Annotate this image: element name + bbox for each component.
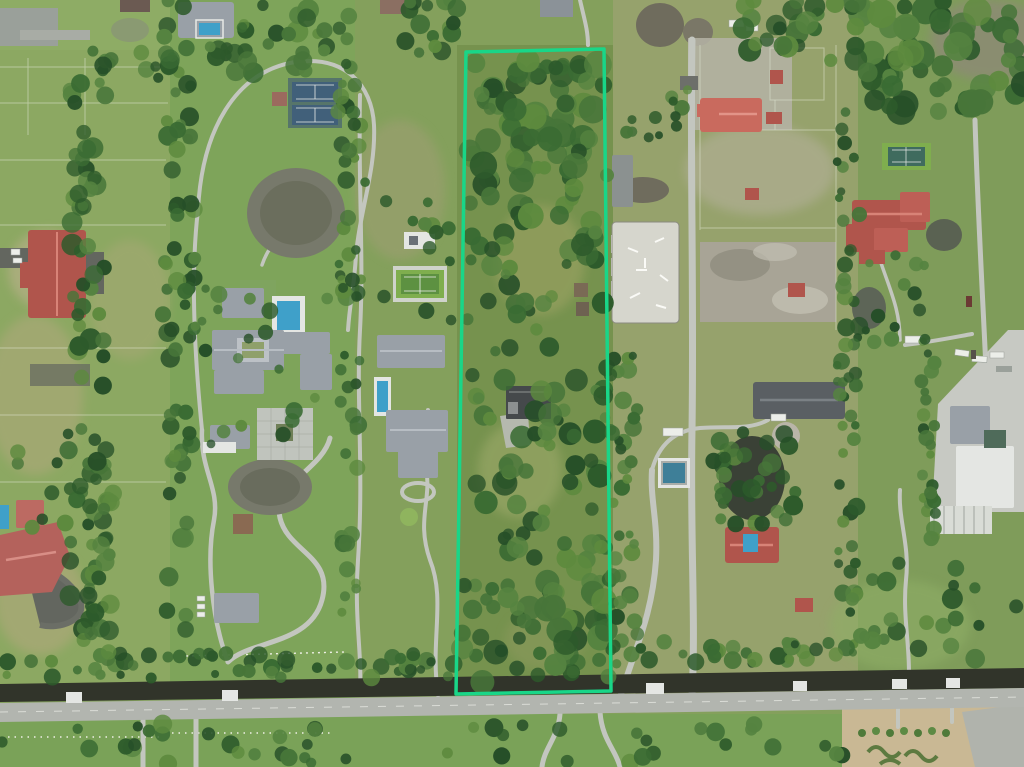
tree-canopy [708, 650, 722, 664]
tree-canopy [180, 299, 191, 310]
tree-canopy [485, 582, 499, 596]
pool-screen-cage [661, 461, 687, 485]
tree-canopy [473, 392, 485, 404]
tree-canopy [182, 426, 196, 440]
equestrian-driveway [691, 40, 693, 695]
tree-canopy [498, 587, 519, 608]
tree-canopy [948, 580, 959, 591]
tree-canopy [443, 671, 453, 681]
tree-canopy [85, 265, 104, 284]
tree-canopy [474, 87, 490, 103]
tree-canopy [552, 722, 567, 737]
tree-canopy [277, 651, 295, 669]
tree-canopy [86, 603, 104, 621]
tree-canopy [908, 286, 922, 300]
tree-canopy [308, 722, 323, 737]
tree-canopy [340, 351, 349, 360]
tree-canopy [628, 412, 641, 425]
tree-canopy [338, 80, 347, 89]
tree-canopy [406, 647, 420, 661]
tree-canopy [628, 115, 637, 124]
house-south-wing [398, 450, 438, 478]
palm [900, 727, 908, 735]
tree-canopy [410, 14, 430, 34]
tree-canopy [95, 670, 105, 680]
tree-canopy [405, 664, 416, 675]
tree-canopy [159, 603, 175, 619]
tree-canopy [694, 722, 707, 735]
tree-canopy [341, 754, 352, 765]
red-shed [745, 188, 759, 200]
parcel-shed [576, 302, 589, 316]
tree-canopy [257, 0, 268, 11]
tree-canopy [823, 637, 835, 649]
tree-canopy [233, 664, 246, 677]
tree-canopy [445, 655, 463, 673]
tree-canopy [160, 257, 173, 270]
tree-canopy [348, 118, 361, 131]
mansion-north-wing [222, 288, 264, 318]
palm [886, 729, 894, 737]
mansion-gable [900, 192, 930, 222]
dirt-lot [636, 3, 684, 47]
tree-canopy [493, 747, 510, 764]
tree-canopy [207, 440, 216, 449]
tree-canopy [178, 40, 194, 56]
clubhouse-garage [214, 593, 259, 623]
tree-canopy [340, 591, 350, 601]
tree-canopy [509, 168, 534, 193]
tree-canopy [177, 283, 193, 299]
tree-canopy [169, 122, 186, 139]
tree-canopy [917, 470, 928, 481]
tree-canopy [833, 157, 842, 166]
palm [858, 729, 866, 737]
aerial-photo [0, 0, 1024, 767]
tree-canopy [562, 474, 578, 490]
tree-canopy [63, 429, 74, 440]
tree-canopy [629, 539, 639, 549]
tree-canopy [72, 478, 89, 495]
tree-canopy [418, 303, 434, 319]
tree-canopy [244, 293, 256, 305]
tree-canopy [1009, 599, 1023, 613]
tree-canopy [79, 238, 96, 255]
tree-canopy [335, 260, 344, 269]
gazebo [233, 514, 253, 534]
tree-canopy [846, 540, 858, 552]
tree-canopy [173, 650, 187, 664]
tree-canopy [150, 61, 160, 71]
tree-canopy [429, 225, 444, 240]
tree-canopy [88, 452, 107, 471]
tree-canopy [349, 460, 365, 476]
tree-canopy [465, 368, 479, 382]
tree-canopy [567, 429, 582, 444]
tree-canopy [760, 33, 774, 47]
tree-canopy [846, 607, 856, 617]
tree-canopy [377, 290, 390, 303]
tree-canopy [70, 185, 88, 203]
tree-canopy [565, 369, 588, 392]
tree-canopy [783, 495, 803, 515]
tree-canopy [422, 0, 434, 11]
tree-canopy [583, 420, 607, 444]
tree-canopy [134, 45, 150, 61]
tree-canopy [205, 41, 216, 52]
parked-car [966, 296, 972, 307]
tree-canopy [178, 75, 197, 94]
tree-canopy [930, 9, 953, 32]
tree-canopy [466, 53, 486, 73]
tree-canopy [94, 377, 112, 395]
tree-canopy [60, 585, 81, 606]
tree-canopy [179, 608, 194, 623]
tree-canopy [3, 671, 11, 679]
mansion-east-wing [282, 332, 330, 354]
tree-canopy [92, 307, 106, 321]
tree-canopy [79, 587, 97, 605]
tree-canopy [893, 14, 920, 41]
tree-canopy [926, 450, 934, 458]
tree-canopy [877, 572, 897, 592]
tree-canopy [540, 337, 560, 357]
tree-canopy [199, 344, 212, 357]
tree-canopy [445, 256, 455, 266]
pond-center [240, 468, 300, 506]
tree-canopy [526, 549, 542, 565]
tree-canopy [687, 653, 704, 670]
tree-canopy [604, 368, 617, 381]
tree-canopy [146, 673, 157, 684]
palm [942, 729, 950, 737]
tree-canopy [396, 32, 414, 50]
tree-canopy [669, 97, 678, 106]
tree-canopy [201, 285, 209, 293]
tree-canopy [733, 17, 755, 39]
tree-canopy [727, 516, 744, 533]
tree-canopy [550, 206, 569, 225]
tree-canopy [584, 454, 598, 468]
tree-canopy [179, 516, 194, 531]
tree-canopy [69, 336, 89, 356]
tree-canopy [237, 22, 248, 33]
tree-canopy [846, 37, 864, 55]
tree-canopy [426, 657, 435, 666]
parked-car [971, 350, 976, 359]
tree-canopy [579, 96, 607, 124]
tree-canopy [338, 653, 355, 670]
tree-canopy [486, 600, 500, 614]
tree-canopy [87, 46, 98, 57]
tree-canopy [601, 669, 617, 685]
tree-canopy [333, 22, 346, 35]
partial-roof [120, 0, 150, 12]
culvert-bridge [892, 679, 907, 689]
tree-canopy [592, 292, 614, 314]
palm [928, 727, 936, 735]
tree-canopy [920, 388, 929, 397]
tree-canopy [418, 217, 432, 231]
tree-canopy [754, 516, 770, 532]
tree-canopy [442, 748, 453, 759]
tree-canopy [930, 508, 941, 519]
tree-canopy [505, 148, 524, 167]
tree-canopy [163, 652, 174, 663]
tree-canopy [164, 161, 181, 178]
tree-canopy [507, 495, 526, 514]
tree-canopy [483, 640, 508, 665]
tree-canopy [160, 49, 180, 69]
tree-canopy [557, 548, 577, 568]
tree-canopy [719, 452, 731, 464]
vehicle [13, 258, 22, 263]
tree-canopy [341, 143, 357, 159]
tree-canopy [835, 278, 851, 294]
tree-canopy [84, 627, 98, 641]
tree-canopy [91, 571, 106, 586]
tree-canopy [463, 600, 482, 619]
vehicle [197, 612, 205, 617]
tree-canopy [884, 331, 899, 346]
tree-canopy [930, 103, 947, 120]
tree-canopy [285, 402, 302, 419]
tree-canopy [153, 715, 172, 734]
tree-canopy [530, 323, 542, 335]
tree-canopy [96, 87, 114, 105]
tree-canopy [74, 370, 89, 385]
tree-canopy [501, 339, 518, 356]
tree-canopy [629, 352, 637, 360]
tree-canopy [95, 78, 105, 88]
tree-canopy [351, 291, 362, 302]
tree-canopy [499, 453, 524, 478]
tree-canopy [408, 216, 419, 227]
tree-canopy [657, 634, 672, 649]
tree-canopy [553, 630, 578, 655]
tree-canopy [341, 8, 358, 25]
tree-canopy [275, 672, 286, 683]
tree-canopy [395, 653, 406, 664]
tree-canopy [715, 513, 726, 524]
tree-canopy [594, 386, 614, 406]
tree-canopy [882, 75, 903, 96]
pond [926, 219, 962, 251]
tree-canopy [169, 450, 181, 462]
tree-canopy [346, 106, 360, 120]
tree-canopy [321, 293, 333, 305]
tree-canopy [625, 455, 638, 468]
tree-canopy [620, 126, 633, 139]
tree-canopy [913, 304, 926, 317]
culvert-bridge [66, 692, 82, 703]
tree-canopy [910, 640, 927, 657]
tree-canopy [213, 305, 223, 315]
tree-canopy [168, 342, 183, 357]
tree-canopy [937, 77, 952, 92]
dirt-mottle [753, 243, 797, 261]
tree-canopy [892, 557, 905, 570]
tree-canopy [37, 514, 48, 525]
tree-canopy [330, 104, 345, 119]
tree-canopy [96, 349, 110, 363]
tree-canopy [852, 207, 867, 222]
tree-canopy [538, 161, 551, 174]
tree-canopy [867, 335, 881, 349]
tree-canopy [497, 729, 509, 741]
tree-canopy [745, 723, 757, 735]
tree-canopy [339, 561, 355, 577]
tree-canopy [943, 638, 959, 654]
tree-canopy [351, 584, 361, 594]
tree-canopy [890, 250, 900, 260]
tree-canopy [915, 374, 929, 388]
tree-canopy [679, 650, 688, 659]
tree-canopy [862, 326, 870, 334]
tree-canopy [567, 666, 580, 679]
tree-canopy [853, 628, 869, 644]
tree-canopy [614, 530, 625, 541]
tree-canopy [355, 356, 365, 366]
tree-canopy [838, 338, 853, 353]
tree-canopy [557, 95, 575, 113]
tree-canopy [641, 735, 653, 747]
tree-canopy [310, 393, 320, 403]
tree-canopy [153, 73, 163, 83]
tree-canopy [835, 194, 843, 202]
tree-canopy [531, 668, 546, 683]
tree-canopy [507, 537, 529, 559]
tree-canopy [178, 405, 193, 420]
tree-canopy [71, 74, 90, 93]
tree-canopy [759, 435, 775, 451]
tree-canopy [128, 660, 139, 671]
tree-canopy [829, 746, 844, 761]
tree-canopy [484, 241, 500, 257]
culvert-bridge [646, 683, 664, 694]
tree-canopy [73, 724, 83, 734]
tree-canopy [350, 422, 363, 435]
tree-canopy [302, 739, 313, 750]
putting-green [400, 508, 418, 526]
tree-canopy [167, 241, 182, 256]
tree-canopy [261, 302, 278, 319]
tree-canopy [217, 425, 231, 439]
tree-canopy [724, 651, 742, 669]
tree-canopy [927, 356, 941, 370]
tree-canopy [501, 269, 511, 279]
tree-canopy [631, 728, 642, 739]
tree-canopy [219, 646, 234, 661]
tree-canopy [834, 559, 843, 568]
tree-canopy [622, 474, 632, 484]
tree-canopy [791, 640, 799, 648]
tree-canopy [174, 528, 194, 548]
tree-canopy [834, 479, 845, 490]
tree-canopy [188, 252, 201, 265]
tree-canopy [335, 396, 347, 408]
tree-canopy [348, 78, 362, 92]
paved-lot [0, 8, 58, 46]
tree-canopy [838, 421, 848, 431]
estate-pool [277, 301, 300, 330]
tree-canopy [833, 388, 847, 402]
tree-canopy [163, 487, 176, 500]
tree-canopy [483, 412, 497, 426]
tree-canopy [773, 22, 787, 36]
tree-canopy [969, 582, 980, 593]
pond [111, 18, 149, 42]
north-house-pool [199, 23, 220, 35]
tree-canopy [844, 372, 855, 383]
tree-canopy [513, 632, 526, 645]
tree-canopy [565, 455, 585, 475]
tree-canopy [275, 427, 290, 442]
mansion-gable [874, 228, 908, 252]
tree-canopy [835, 123, 848, 136]
culvert-bridge [793, 681, 807, 691]
tree-canopy [417, 665, 426, 674]
tree-canopy [76, 423, 88, 435]
tree-canopy [233, 353, 243, 363]
tree-canopy [796, 11, 819, 34]
tree-canopy [847, 432, 861, 446]
tree-canopy [919, 615, 934, 630]
tree-canopy [565, 178, 584, 197]
vehicle [197, 596, 205, 601]
tree-canopy [244, 334, 254, 344]
pond-center [260, 181, 332, 245]
tree-canopy [238, 51, 257, 70]
worn-paddock [685, 125, 835, 215]
tree-canopy [846, 592, 859, 605]
tree-canopy [924, 349, 932, 357]
tree-canopy [164, 322, 179, 337]
tree-canopy [414, 47, 424, 57]
tree-canopy [784, 654, 794, 664]
tree-canopy [634, 748, 652, 766]
tree-canopy [1001, 53, 1016, 68]
tree-canopy [232, 746, 245, 759]
tree-canopy [177, 621, 194, 638]
tree-canopy [24, 654, 38, 668]
tree-canopy [468, 722, 479, 733]
tree-canopy [866, 573, 879, 586]
tree-canopy [159, 567, 178, 586]
tree-canopy [99, 621, 119, 641]
tree-canopy [345, 273, 360, 288]
tree-canopy [636, 643, 647, 654]
red-shed [795, 598, 813, 612]
tree-canopy [248, 748, 260, 760]
tree-canopy [641, 651, 658, 668]
tree-canopy [535, 295, 552, 312]
tree-canopy [340, 448, 351, 459]
parcel-shed [574, 283, 588, 297]
tree-canopy [530, 380, 552, 402]
tree-canopy [71, 308, 84, 321]
tree-canopy [98, 503, 110, 515]
tree-canopy [494, 369, 516, 391]
tree-canopy [837, 136, 852, 151]
red-shed [766, 112, 782, 124]
tree-canopy [293, 51, 312, 70]
trailer [990, 352, 1004, 358]
tree-canopy [538, 422, 557, 441]
culvert-bridge [946, 678, 960, 688]
tree-canopy [958, 89, 986, 117]
tree-canopy [715, 487, 733, 505]
